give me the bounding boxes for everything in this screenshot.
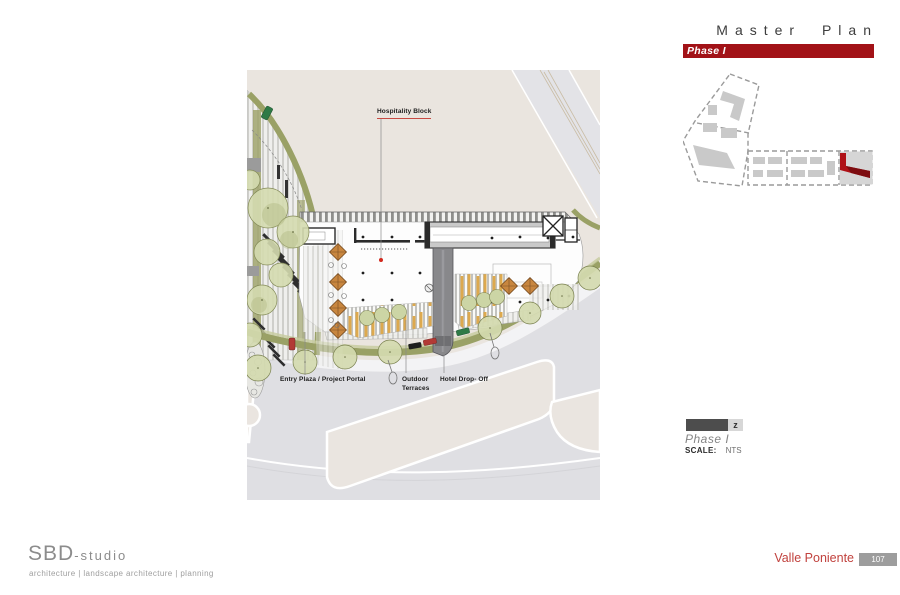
north-glyph: z xyxy=(728,419,743,431)
page-title: Master Plan xyxy=(620,22,878,38)
north-indicator: z xyxy=(686,419,743,431)
document-page: Master Plan Phase I xyxy=(0,0,900,595)
label-hospitality-block: Hospitality Block xyxy=(377,108,431,119)
key-map xyxy=(683,73,883,198)
studio-tagline: architecture | landscape architecture | … xyxy=(29,569,214,578)
site-plan: Hospitality Block Entry Plaza / Project … xyxy=(247,70,600,500)
page-number: 107 xyxy=(859,553,897,566)
reference-dot xyxy=(379,258,383,262)
scale-label: SCALE: xyxy=(685,446,717,455)
studio-suffix: -studio xyxy=(74,548,127,563)
label-entry-plaza: Entry Plaza / Project Portal xyxy=(280,376,366,385)
studio-logo: SBD-studio xyxy=(28,542,127,566)
label-outdoor-terraces: Outdoor Terraces xyxy=(402,376,429,394)
project-name: Valle Poniente xyxy=(722,551,854,565)
scale-value: NTS xyxy=(726,446,742,455)
studio-name: SBD xyxy=(28,542,74,565)
site-plan-drawing xyxy=(247,70,600,500)
label-hotel-dropoff: Hotel Drop- Off xyxy=(440,376,488,385)
phase-banner-label: Phase I xyxy=(683,44,874,58)
legend-phase-label: Phase I xyxy=(685,432,729,446)
phase-banner: Phase I xyxy=(683,44,874,58)
legend-scale: SCALE:NTS xyxy=(685,446,742,455)
